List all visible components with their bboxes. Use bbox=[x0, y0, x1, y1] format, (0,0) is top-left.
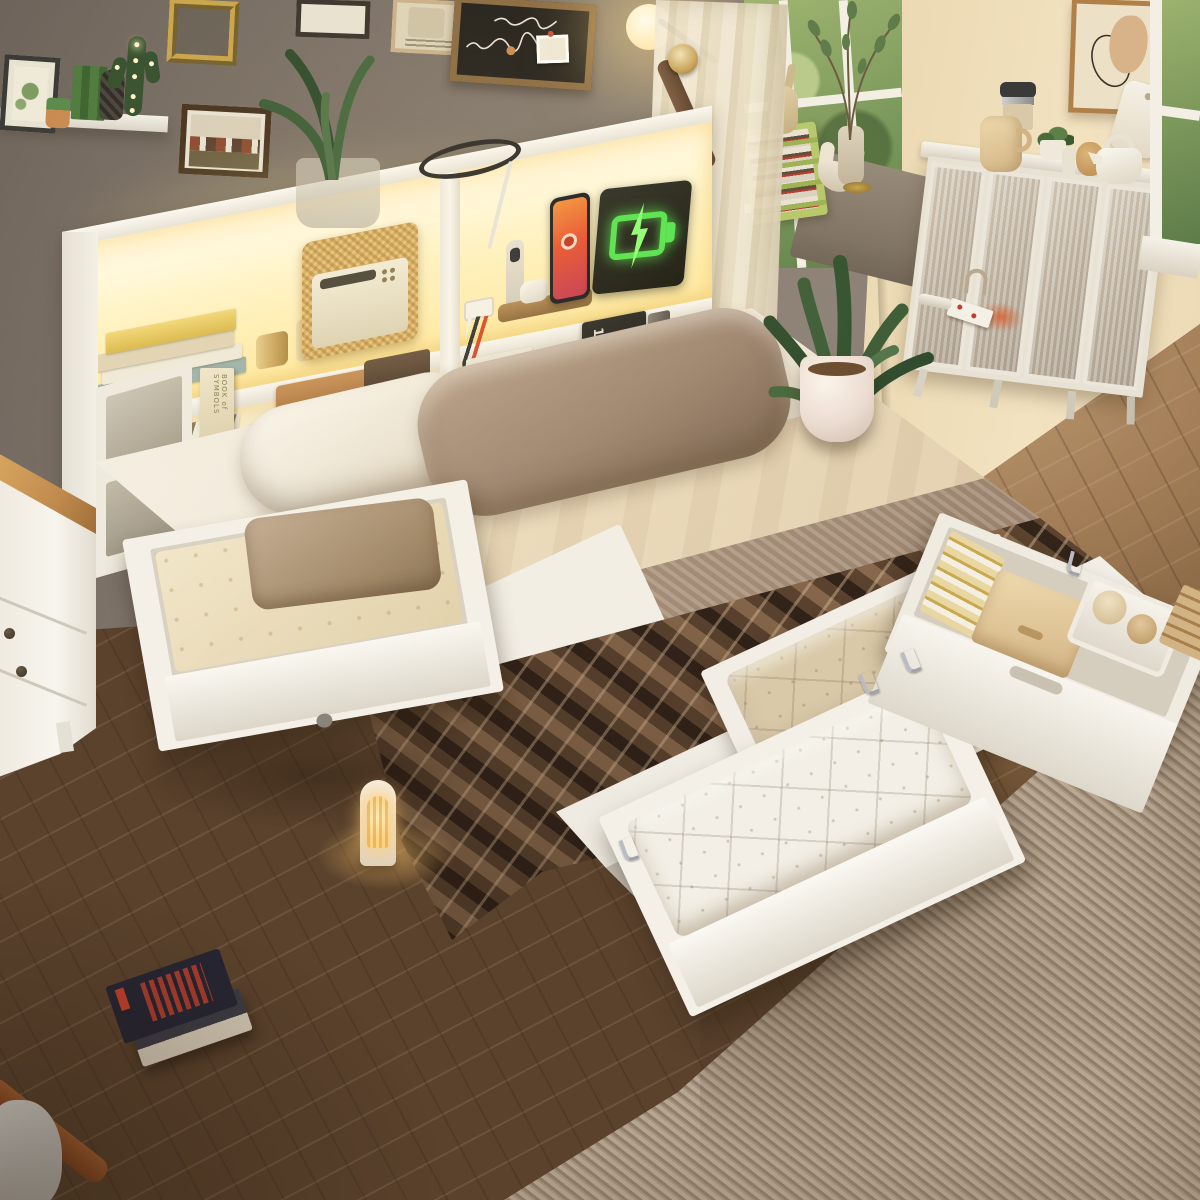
chalkboard bbox=[449, 0, 597, 91]
cactus-print-art bbox=[11, 66, 49, 122]
yarn-spool-1 bbox=[256, 330, 288, 370]
curtain-tieback-knob bbox=[668, 44, 698, 74]
coin-dish bbox=[843, 182, 871, 193]
window-right bbox=[1150, 0, 1200, 244]
gold-ornate-frame bbox=[166, 0, 239, 66]
battery-neon-sign bbox=[592, 180, 693, 295]
kettle-body bbox=[1096, 148, 1142, 184]
pinned-photo bbox=[536, 35, 569, 64]
watch-face bbox=[510, 247, 520, 263]
arch-night-light bbox=[360, 780, 396, 866]
plant-soil bbox=[808, 362, 866, 376]
plush-toy-1 bbox=[1087, 585, 1131, 629]
nightstand-knob-2 bbox=[16, 666, 27, 677]
cactus-arm-right bbox=[143, 50, 161, 84]
cabinet-leg-3 bbox=[1066, 391, 1076, 420]
white-kettle bbox=[1094, 134, 1144, 186]
window-right-frame-bar bbox=[1150, 0, 1162, 244]
window-right-mullion bbox=[1158, 105, 1200, 121]
green-branches bbox=[792, 0, 922, 140]
plush-toy-2 bbox=[1122, 610, 1161, 649]
cabinet-leg-2 bbox=[989, 379, 1002, 408]
card-hearts bbox=[957, 304, 963, 310]
nightstand-knob-1 bbox=[4, 628, 15, 639]
smartphone-on-dock bbox=[550, 191, 590, 305]
nightstand bbox=[0, 446, 108, 796]
cactus-marquee-light bbox=[101, 34, 165, 122]
cabinet-leg-4 bbox=[1127, 396, 1135, 424]
grinder-cap bbox=[1000, 82, 1036, 98]
rattan-speaker bbox=[302, 221, 418, 362]
cabinet-headphones bbox=[964, 267, 989, 295]
neon-battery-terminal bbox=[665, 222, 676, 243]
chair-corner bbox=[0, 1064, 144, 1200]
vase-leaf-stems bbox=[230, 0, 390, 180]
speaker-front-panel bbox=[312, 257, 408, 350]
chalk-handwriting bbox=[457, 3, 590, 82]
bedroom-product-photo: HE PRADA 1000 BOOK of SYMBOLS bbox=[0, 0, 1200, 1200]
chair-cushion bbox=[0, 1100, 62, 1200]
floor-plant-pot bbox=[800, 356, 874, 442]
print-figure bbox=[407, 7, 445, 39]
print-caption-lines bbox=[405, 39, 453, 50]
night-light-bulb-window bbox=[367, 796, 389, 848]
fabric-box-handle bbox=[1017, 624, 1044, 641]
succulent-pot bbox=[45, 97, 71, 128]
cactus-trunk bbox=[123, 36, 147, 117]
